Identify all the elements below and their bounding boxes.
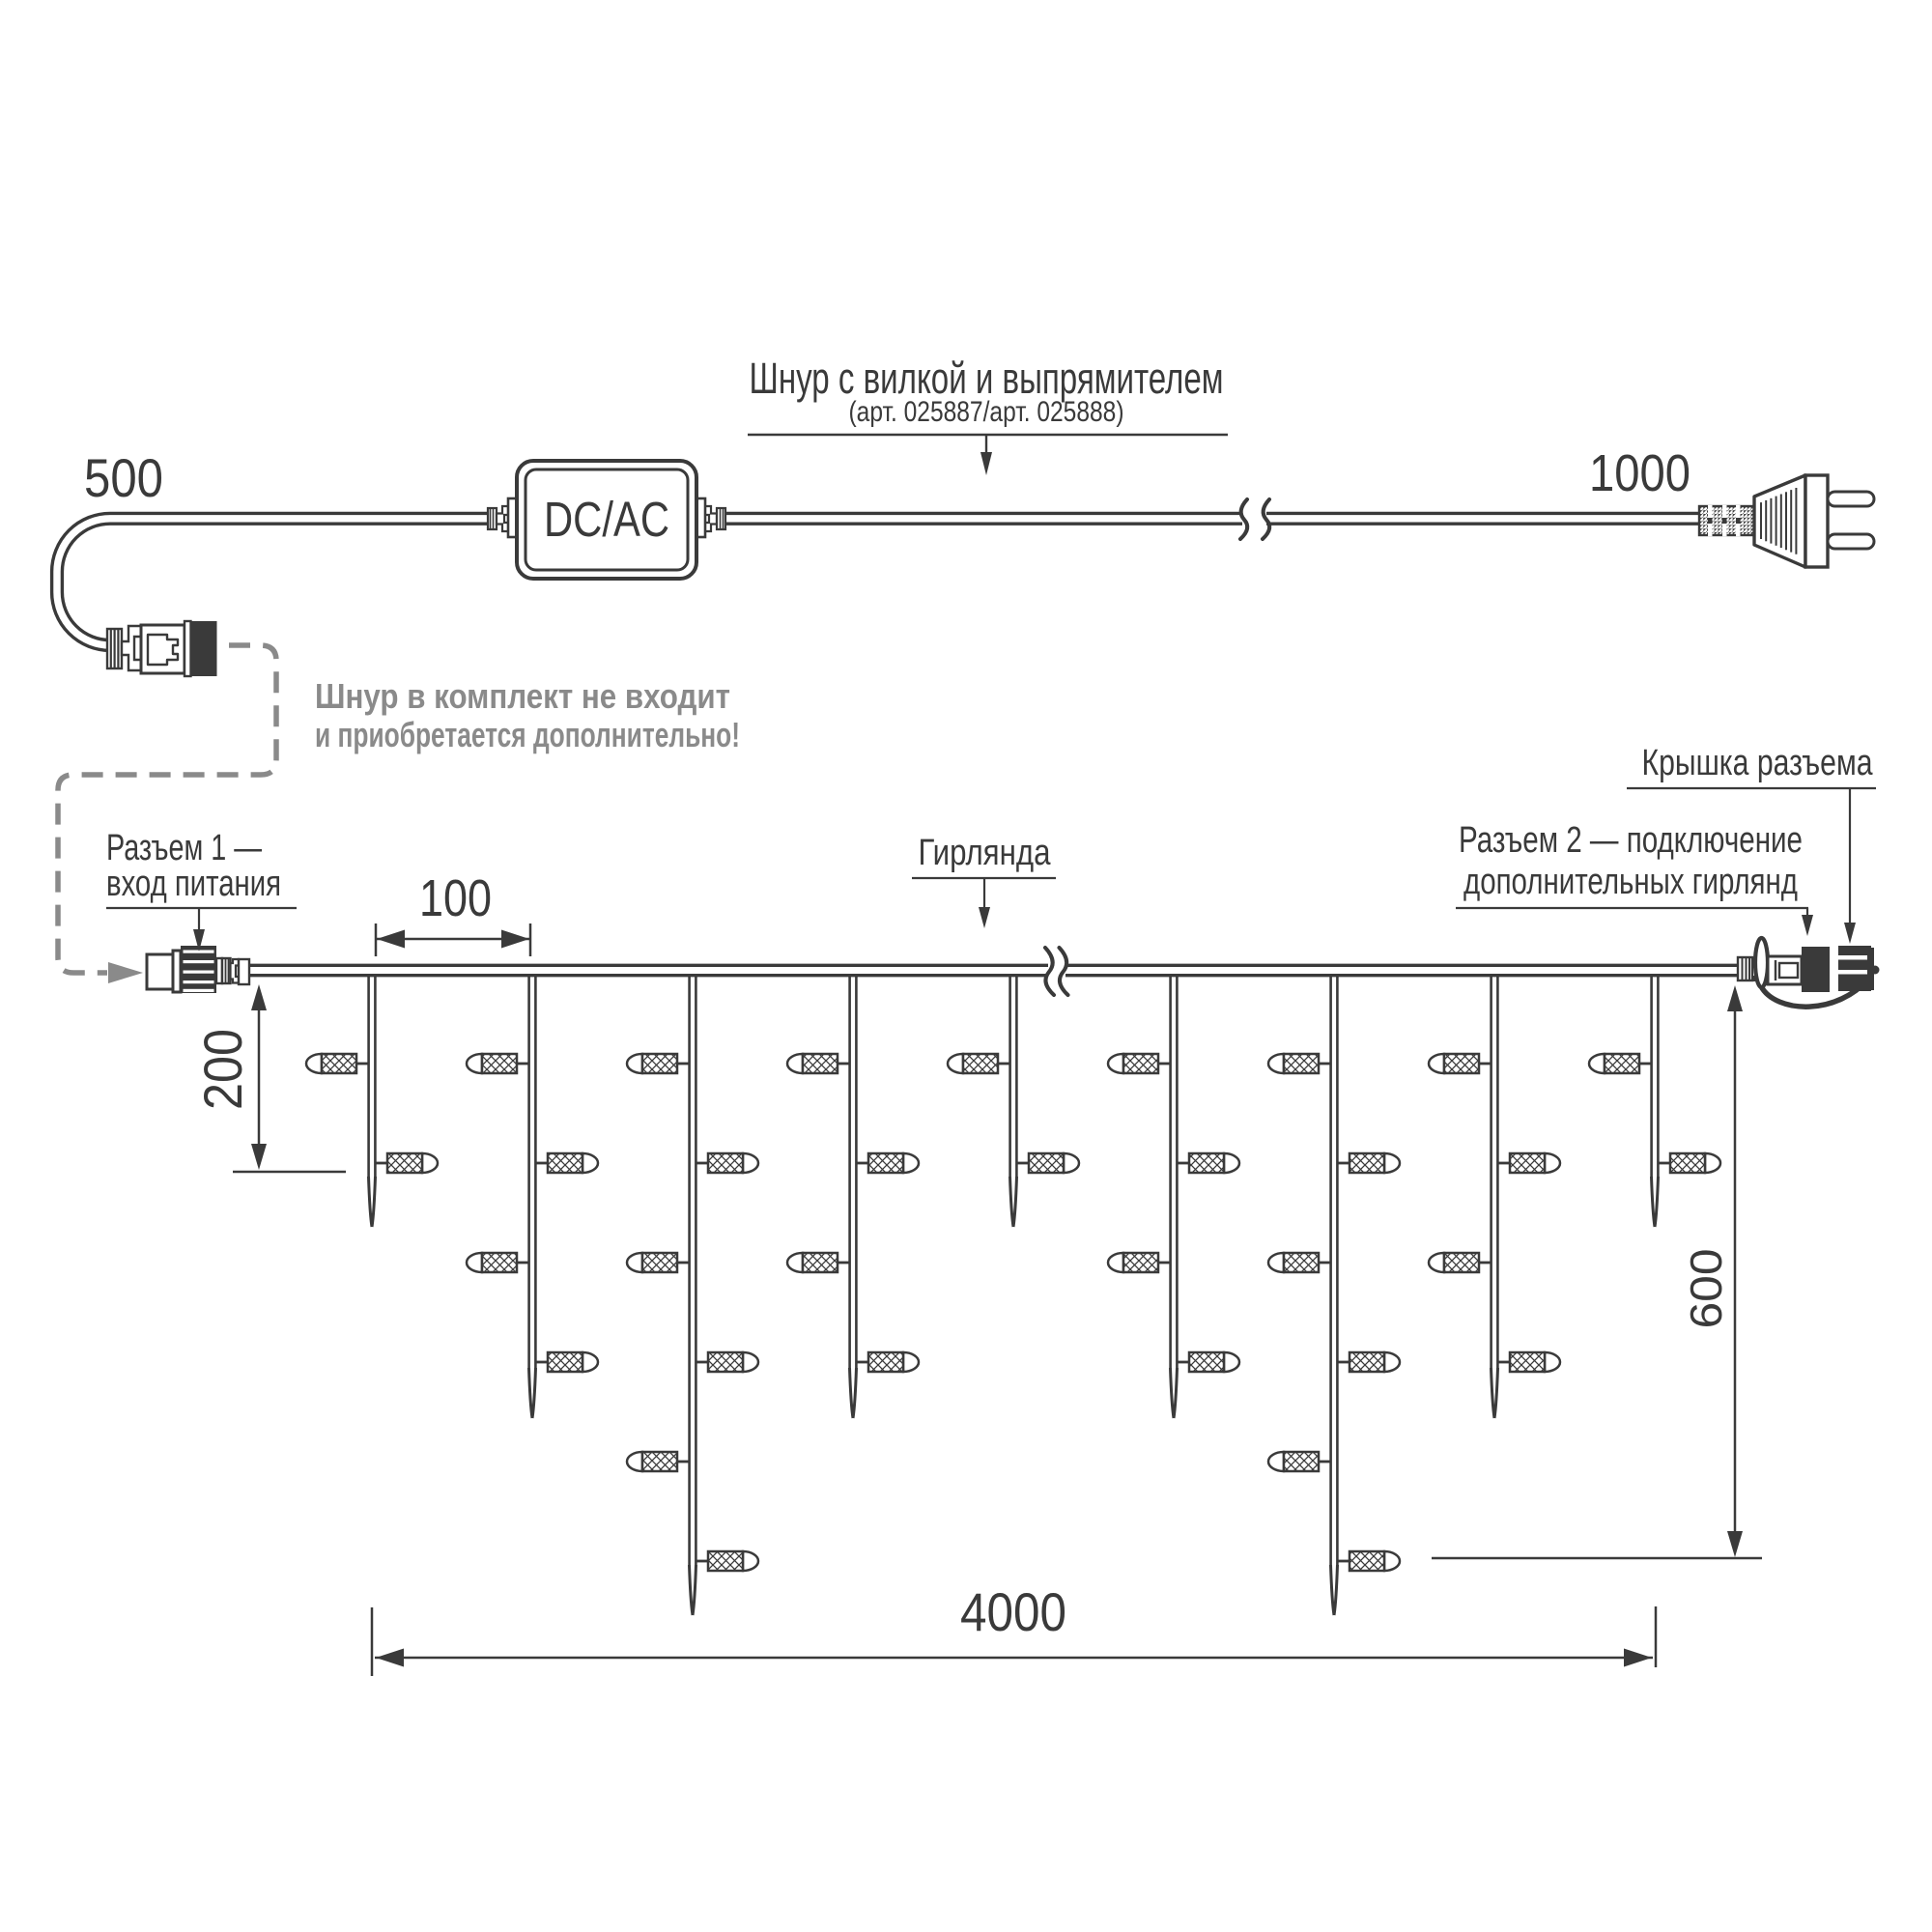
- svg-text:Разъем 2 — подключение: Разъем 2 — подключение: [1459, 820, 1803, 861]
- svg-text:Разъем 1 —: Разъем 1 —: [106, 828, 262, 868]
- svg-text:100: 100: [419, 869, 492, 927]
- svg-text:4000: 4000: [960, 1581, 1066, 1642]
- svg-text:600: 600: [1681, 1249, 1731, 1329]
- svg-text:Крышка разъема: Крышка разъема: [1642, 743, 1874, 783]
- svg-text:дополнительных гирлянд: дополнительных гирлянд: [1463, 862, 1798, 902]
- svg-text:и приобретается дополнительно!: и приобретается дополнительно!: [315, 715, 740, 754]
- svg-text:DC/AC: DC/AC: [544, 492, 669, 547]
- svg-text:вход питания: вход питания: [106, 864, 281, 904]
- svg-text:500: 500: [84, 447, 163, 508]
- svg-text:1000: 1000: [1589, 444, 1690, 502]
- svg-text:Гирлянда: Гирлянда: [919, 833, 1052, 873]
- svg-text:(арт. 025887/арт. 025888): (арт. 025887/арт. 025888): [849, 396, 1124, 428]
- svg-text:200: 200: [192, 1029, 253, 1110]
- svg-text:Шнур в комплект не входит: Шнур в комплект не входит: [315, 676, 730, 716]
